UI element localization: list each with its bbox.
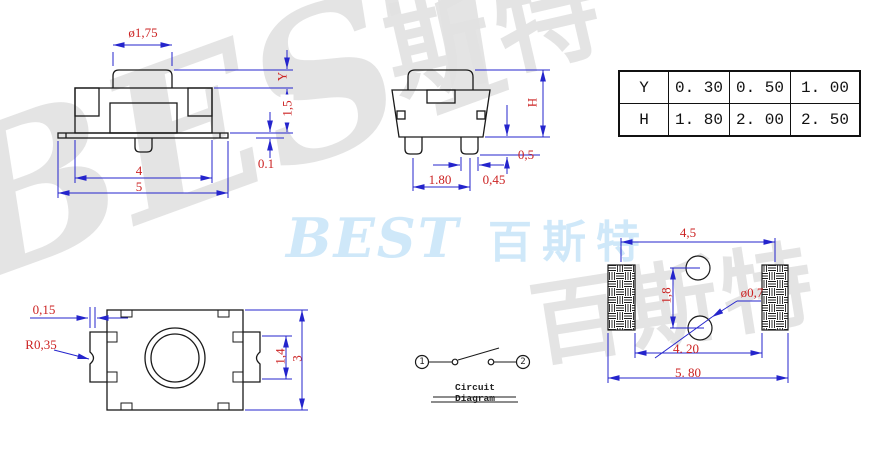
y-value-3: 1. 00 bbox=[791, 71, 861, 104]
table-row-h: H 1. 80 2. 00 2. 50 bbox=[619, 104, 860, 137]
spec-table: Y 0. 30 0. 50 1. 00 H 1. 80 2. 00 2. 50 bbox=[618, 70, 861, 137]
dim-inner-span: 4. 20 bbox=[664, 342, 708, 355]
h-value-3: 2. 50 bbox=[791, 104, 861, 137]
circuit-diagram-caption: Circuit Diagram bbox=[433, 382, 517, 404]
side-left-leg bbox=[405, 137, 422, 154]
dim-leg-height: 0,5 bbox=[510, 148, 542, 161]
dim-body-height: 1,5 bbox=[281, 95, 294, 123]
dim-leg-pitch: 1.80 bbox=[418, 173, 462, 186]
top-left-tab bbox=[90, 332, 107, 382]
drawing-sheet: BEST 斯特 百斯特 BEST百斯特 bbox=[0, 0, 879, 453]
h-param-cell: H bbox=[619, 104, 669, 137]
top-button-inner-circle bbox=[151, 334, 199, 382]
terminal-2-number: 2 bbox=[517, 356, 530, 369]
dim-body-width: 4 bbox=[109, 164, 169, 177]
side-right-leg bbox=[461, 137, 478, 154]
table-row-y: Y 0. 30 0. 50 1. 00 bbox=[619, 71, 860, 104]
dim-hole-diameter: ø0,7 bbox=[731, 286, 773, 299]
contact-right-circle bbox=[488, 359, 494, 365]
dim-tab-height: 1,4 bbox=[274, 343, 287, 371]
contact-left-circle bbox=[452, 359, 458, 365]
front-body-outline bbox=[75, 88, 212, 133]
dim-groove-radius: R0,35 bbox=[14, 338, 68, 351]
front-base-plate bbox=[58, 133, 228, 138]
dim-travel-y: Y bbox=[276, 67, 289, 87]
dim-pad-pitch: 4,5 bbox=[668, 226, 708, 239]
h-value-1: 1. 80 bbox=[669, 104, 730, 137]
dim-tab-gap: 0,15 bbox=[24, 303, 64, 316]
dim-total-width: 5 bbox=[109, 180, 169, 193]
dim-leg-width: 0,45 bbox=[472, 173, 516, 186]
side-body-outline bbox=[392, 90, 490, 137]
side-button-outline bbox=[408, 70, 473, 90]
top-view-drawing bbox=[30, 307, 308, 410]
front-button-outline bbox=[113, 70, 172, 88]
front-pin bbox=[135, 138, 152, 152]
side-view-drawing bbox=[392, 70, 550, 191]
front-view-drawing bbox=[58, 45, 293, 198]
dim-height-h: H bbox=[526, 94, 539, 112]
y-value-2: 0. 50 bbox=[730, 71, 791, 104]
y-param-cell: Y bbox=[619, 71, 669, 104]
top-right-tab bbox=[243, 332, 260, 382]
h-value-2: 2. 00 bbox=[730, 104, 791, 137]
switch-arm bbox=[458, 348, 499, 360]
dim-outer-span: 5. 80 bbox=[666, 366, 710, 379]
dim-hole-pitch: 1,8 bbox=[660, 282, 673, 310]
top-button-outer-circle bbox=[145, 328, 205, 388]
dim-top-body-height: 3 bbox=[291, 350, 304, 368]
left-pad bbox=[608, 265, 635, 330]
footprint-drawing bbox=[608, 238, 788, 383]
top-body-outline bbox=[107, 310, 243, 410]
terminal-1-number: 1 bbox=[416, 356, 429, 369]
dim-plate-thickness: 0.1 bbox=[252, 157, 280, 170]
dim-button-diameter: ø1,75 bbox=[108, 26, 178, 39]
y-value-1: 0. 30 bbox=[669, 71, 730, 104]
